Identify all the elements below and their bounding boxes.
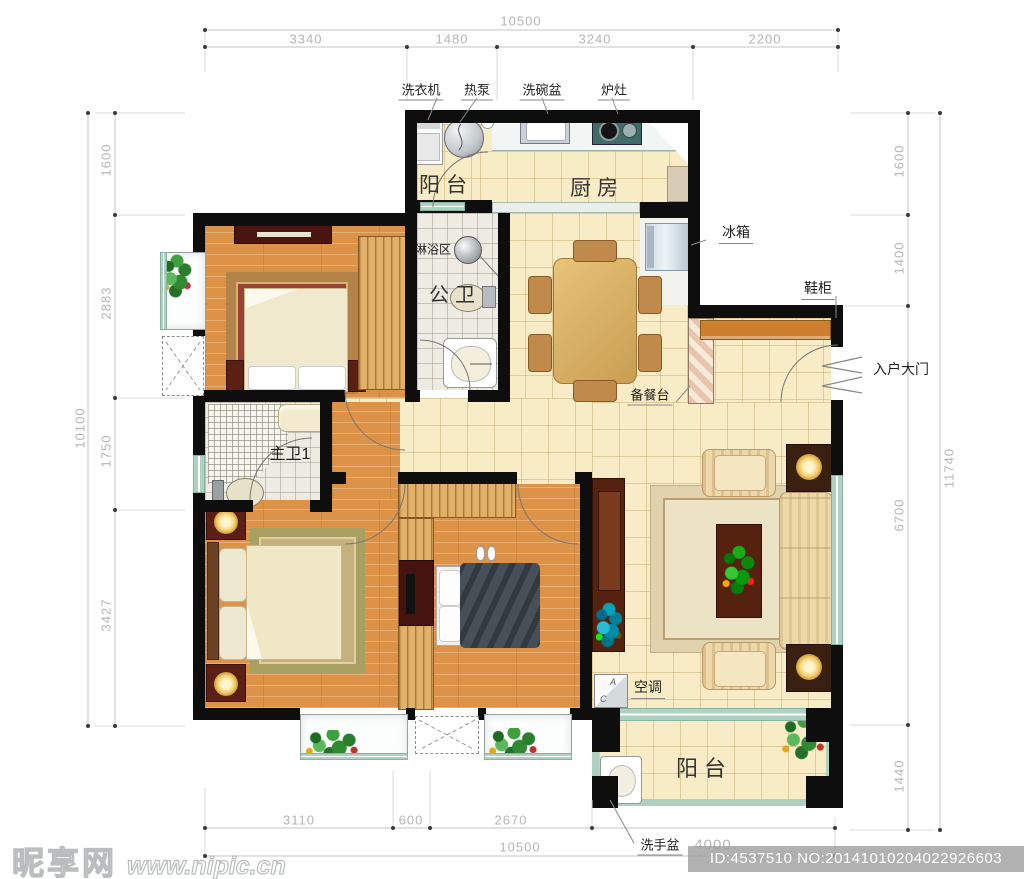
public-basin <box>443 338 497 388</box>
bedroom1-wardrobe <box>358 236 406 390</box>
bedroom2-tv-cabinet <box>399 560 434 626</box>
wall <box>405 110 700 123</box>
bay-window-bottom <box>415 716 479 754</box>
wall <box>398 472 517 484</box>
label-fridge: 冰箱 <box>719 222 753 244</box>
dining-chair <box>528 276 552 314</box>
bedroom1-pillow <box>298 366 346 390</box>
label-balcony-top: 阳台 <box>419 169 473 199</box>
wall <box>193 213 417 226</box>
slippers <box>476 546 485 561</box>
public-basin-bowl <box>451 346 491 382</box>
wall <box>193 395 205 710</box>
wall <box>498 213 510 398</box>
dim-top-seg: 2200 <box>749 32 782 47</box>
dining-chair <box>638 276 662 314</box>
wall <box>320 402 332 512</box>
label-stove: 炉灶 <box>598 80 630 101</box>
wall <box>831 305 843 347</box>
label-heat-pump: 热泵 <box>461 80 493 101</box>
dim-top-seg: 1480 <box>436 32 469 47</box>
watermark-id-bar: ID:4537510 NO:20141010204022926603 <box>688 846 1024 872</box>
label-prep-counter: 备餐台 <box>627 385 672 406</box>
wall <box>193 500 253 512</box>
washing-machine-door <box>413 133 440 161</box>
table-bouquet <box>722 544 756 596</box>
wall <box>829 708 843 808</box>
wall <box>193 213 205 253</box>
dining-table <box>553 258 637 384</box>
label-washing-machine: 洗衣机 <box>398 80 443 101</box>
label-shower-area: 淋浴区 <box>415 241 451 258</box>
label-shoe-cabinet: 鞋柜 <box>801 278 835 300</box>
label-hand-basin: 洗手盆 <box>637 835 682 856</box>
armchair-seat <box>714 455 766 491</box>
wall <box>580 484 592 710</box>
dining-chair <box>573 380 617 402</box>
shoe-cabinet <box>700 320 831 340</box>
label-public-bathroom: 公卫 <box>429 279 481 308</box>
dim-right-seg: 1400 <box>892 242 907 275</box>
living-room-window <box>831 475 843 645</box>
floor-lamp <box>796 454 822 480</box>
dining-chair <box>573 240 617 262</box>
label-dish-basin: 洗碗盆 <box>519 80 564 101</box>
dim-top-total: 10500 <box>500 14 541 29</box>
label-kitchen: 厨房 <box>570 172 624 202</box>
water-heater <box>667 166 689 202</box>
watermark-brand: 昵享网 <box>12 838 117 879</box>
cabinet-flowers <box>596 602 622 648</box>
heat-pump <box>444 118 484 158</box>
label-balcony-bottom: 阳台 <box>676 751 732 783</box>
kitchen-pass-counter <box>492 202 640 213</box>
master-pillow <box>219 606 247 660</box>
bedroom2-pillow <box>439 570 461 606</box>
dining-chair <box>528 334 552 372</box>
bedroom2-blanket <box>460 563 540 648</box>
master-headboard <box>207 542 219 660</box>
armchair-seat <box>714 651 766 687</box>
window-frame-strip <box>484 753 572 760</box>
dim-left-seg: 1600 <box>99 144 114 177</box>
ac-letter-a: A <box>610 677 616 687</box>
wall <box>640 202 688 218</box>
dim-right-total: 11740 <box>942 448 957 488</box>
wall <box>468 390 510 402</box>
watermark: 昵享网 www.nipic.cn <box>12 838 286 879</box>
wall <box>193 390 345 402</box>
bedroom2-pillow <box>439 606 461 642</box>
label-entrance-door: 入户大门 <box>873 359 929 379</box>
dining-chair <box>638 334 662 372</box>
tv-cabinet-inlay <box>598 491 621 591</box>
dim-bottom-seg: 2670 <box>495 813 528 828</box>
tv-icon <box>406 574 415 614</box>
wall <box>332 472 346 484</box>
bay-window-left <box>162 336 204 396</box>
master-lamp <box>214 510 238 534</box>
living-balcony-slider <box>618 708 814 721</box>
fridge <box>645 223 689 271</box>
watermark-site: www.nipic.cn <box>127 852 286 879</box>
bedroom1-pillow <box>248 366 296 390</box>
dresser <box>234 224 332 244</box>
window-frame-strip <box>160 252 167 330</box>
wall <box>310 500 332 512</box>
dim-right-seg: 1440 <box>892 760 907 793</box>
shower-head <box>454 236 482 264</box>
dim-right-seg: 6700 <box>892 499 907 532</box>
dim-bottom-seg: 600 <box>399 813 424 828</box>
wall-corner <box>592 776 618 808</box>
label-air-conditioner: 空调 <box>631 677 665 699</box>
bedroom1-nightstand <box>226 360 244 392</box>
dim-left-seg: 1750 <box>99 435 114 468</box>
slippers <box>487 546 496 561</box>
wall <box>575 472 592 484</box>
wall <box>570 708 592 720</box>
dresser-top <box>257 232 311 237</box>
master-bed <box>246 545 342 660</box>
window-frame-strip <box>300 753 408 760</box>
armchair <box>702 642 776 690</box>
wall <box>688 305 831 318</box>
sink-basin <box>526 122 566 141</box>
wall-corner <box>806 776 830 808</box>
stove-burner-left <box>599 121 619 141</box>
dim-top-seg: 3340 <box>290 32 323 47</box>
balcony-kitchen-window <box>420 202 465 211</box>
dim-bottom-seg: 3110 <box>283 813 315 828</box>
fridge-handle-strip <box>647 226 654 268</box>
wall <box>831 645 843 713</box>
wall-corner <box>806 708 830 742</box>
bedroom2-wardrobe-top <box>398 478 516 518</box>
sofa <box>779 492 833 650</box>
dim-left-total: 10100 <box>73 407 88 448</box>
wall <box>688 110 700 318</box>
label-master-bathroom: 主卫1 <box>270 440 311 464</box>
master-pillow <box>219 548 247 602</box>
floor-lamp <box>796 654 822 680</box>
master-bedroom-floor-upper <box>332 402 400 500</box>
dim-top-seg: 3240 <box>579 32 612 47</box>
dim-left-seg: 2883 <box>99 287 114 320</box>
wall <box>831 400 843 475</box>
ac-unit: A C <box>594 674 628 708</box>
ac-letter-c: C <box>600 694 607 704</box>
master-lamp <box>214 672 238 696</box>
wall <box>193 708 300 720</box>
dim-left-seg: 3427 <box>99 599 114 632</box>
floor-plan-canvas: A C <box>0 0 1024 879</box>
master-bath-window <box>193 455 205 493</box>
wall <box>405 390 420 402</box>
wall-corner <box>592 708 620 752</box>
public-toilet-tank <box>482 286 496 308</box>
armchair <box>702 449 776 497</box>
dim-right-seg: 1600 <box>892 145 907 178</box>
stove-burner-right <box>622 123 637 138</box>
dim-bottom-total: 10500 <box>499 840 540 855</box>
